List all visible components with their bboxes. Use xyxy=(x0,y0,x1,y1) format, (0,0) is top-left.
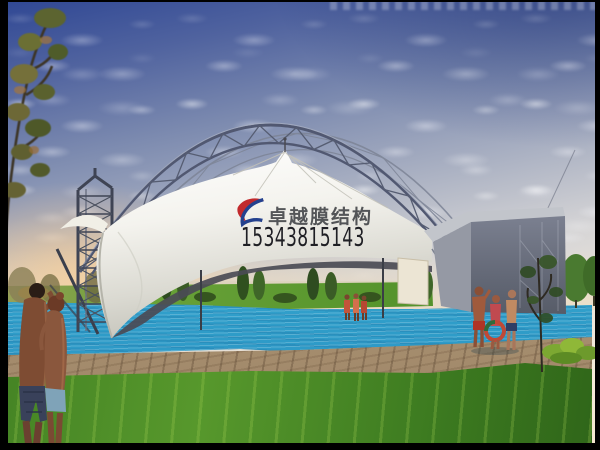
phone-number: 15343815143 xyxy=(241,223,365,253)
overhanging-tree xyxy=(0,0,110,235)
shrub xyxy=(542,338,600,364)
frame-border-right xyxy=(595,0,600,450)
swimmers-group xyxy=(471,287,519,356)
foreground-couple xyxy=(19,283,67,449)
frame-border-top xyxy=(0,0,600,2)
membrane-side-panel xyxy=(398,258,428,305)
frame-border-left xyxy=(0,0,8,450)
watermark: 卓越膜结构 15343815143 xyxy=(230,192,400,256)
rendering-photo: 卓越膜结构 15343815143 xyxy=(0,0,600,450)
pool-corner-figures xyxy=(344,293,367,321)
frame-border-bottom xyxy=(0,443,600,450)
